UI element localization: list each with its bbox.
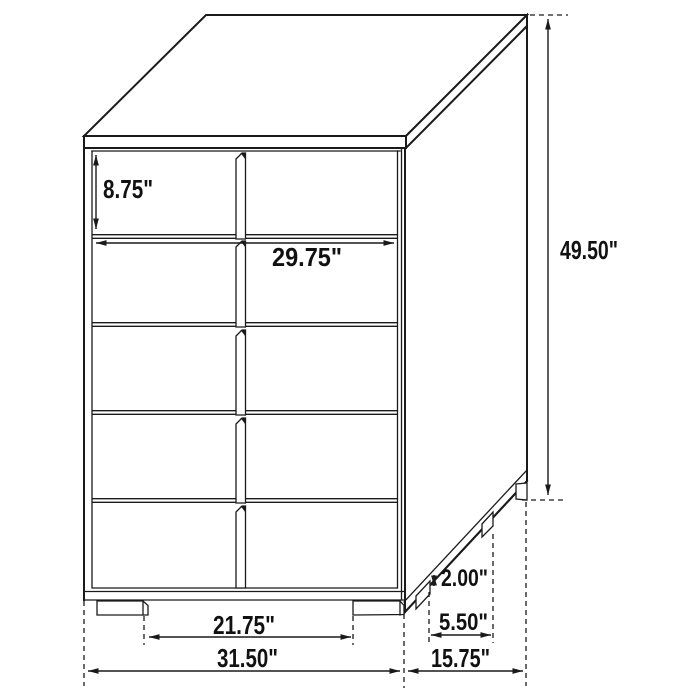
side-foot-rear <box>516 483 527 500</box>
overall-width-label: 31.50" <box>217 643 278 673</box>
drawer-handle <box>236 330 246 415</box>
side-leg-spacing-label: 5.50" <box>439 609 488 636</box>
dimension-drawer-height: 8.75" <box>96 155 153 229</box>
right-foot <box>353 601 404 615</box>
drawer-handle <box>236 418 246 503</box>
leg-height-label: 2.00" <box>441 565 488 592</box>
drawer-height-label: 8.75" <box>103 174 153 204</box>
drawer-handle <box>236 153 246 239</box>
dimension-overall-height: 49.50" <box>548 19 618 495</box>
left-foot <box>97 601 148 615</box>
dimension-overall-width: 31.50" <box>88 643 400 673</box>
dimension-side-leg-spacing: 5.50" <box>431 609 491 636</box>
front-leg-spacing-label: 21.75" <box>213 610 275 640</box>
dimension-front-leg-spacing: 21.75" <box>149 610 351 640</box>
dimension-leg-height: 2.00" <box>434 565 488 592</box>
plinth <box>84 592 404 601</box>
overall-depth-label: 15.75" <box>431 643 490 673</box>
dimension-overall-depth: 15.75" <box>408 643 523 673</box>
drawer-handle <box>236 506 246 588</box>
overall-height-label: 49.50" <box>560 235 618 265</box>
dimension-diagram: 8.75" 29.75" 49.50" 2.00" 5.50" 21.75" 3… <box>0 0 700 700</box>
drawer-handle <box>236 241 246 327</box>
drawer-width-label: 29.75" <box>272 242 342 272</box>
drawer-handles <box>236 153 246 588</box>
cabinet-drawing <box>84 15 527 615</box>
chest-line-drawing: 8.75" 29.75" 49.50" 2.00" 5.50" 21.75" 3… <box>0 0 700 700</box>
